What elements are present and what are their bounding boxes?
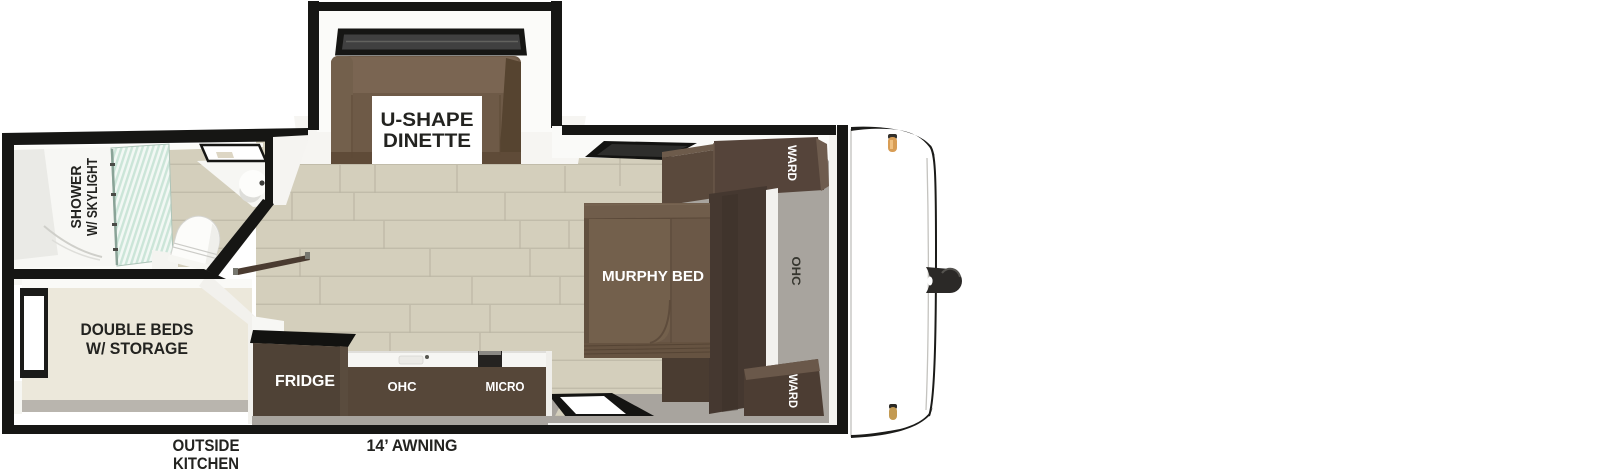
svg-text:KITCHEN: KITCHEN: [173, 455, 239, 470]
svg-text:SHOWER: SHOWER: [68, 165, 85, 228]
svg-text:OHC: OHC: [789, 257, 803, 286]
svg-text:W/ STORAGE: W/ STORAGE: [86, 340, 188, 358]
svg-text:W/ SKYLIGHT: W/ SKYLIGHT: [84, 158, 101, 236]
svg-text:MICRO: MICRO: [486, 379, 525, 394]
svg-text:WARD: WARD: [786, 374, 800, 408]
svg-text:DOUBLE BEDS: DOUBLE BEDS: [81, 321, 194, 339]
svg-text:OUTSIDE: OUTSIDE: [173, 437, 240, 455]
svg-text:FRIDGE: FRIDGE: [275, 373, 335, 390]
svg-text:U-SHAPE: U-SHAPE: [381, 110, 474, 131]
svg-text:WARD: WARD: [785, 145, 799, 181]
svg-text:MURPHY BED: MURPHY BED: [602, 268, 704, 285]
svg-text:14’ AWNING: 14’ AWNING: [367, 437, 458, 455]
svg-text:DINETTE: DINETTE: [383, 131, 471, 152]
svg-text:OHC: OHC: [388, 379, 418, 394]
